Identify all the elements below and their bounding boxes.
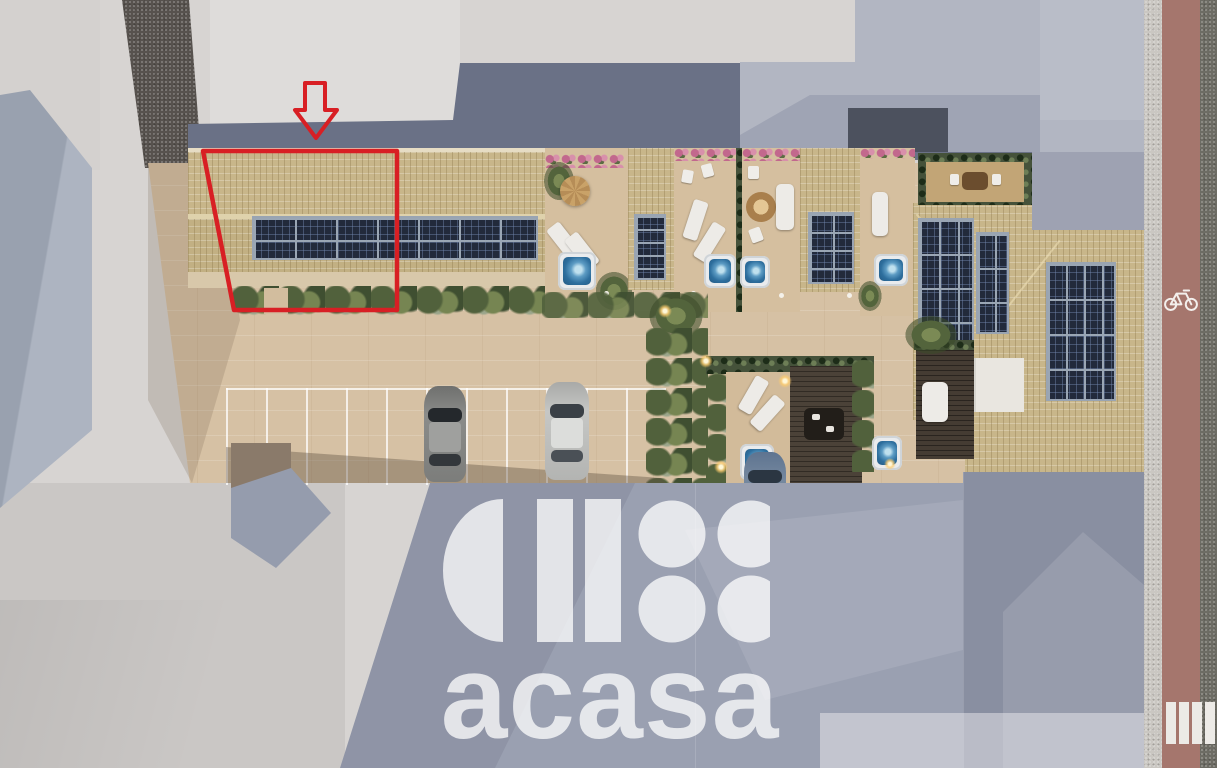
logo-half-disc <box>443 499 503 642</box>
logo-dot <box>718 501 771 568</box>
down-arrow-icon <box>295 83 337 138</box>
logo-bar <box>585 499 621 642</box>
highlighted-unit-outline <box>203 151 397 310</box>
site-render-stage: acasa <box>0 0 1217 768</box>
acasa-logo-mark <box>437 497 770 643</box>
logo-dot <box>639 501 706 568</box>
acasa-wordmark: acasa <box>420 637 800 757</box>
logo-bar <box>537 499 573 642</box>
watermark: acasa <box>420 485 800 755</box>
